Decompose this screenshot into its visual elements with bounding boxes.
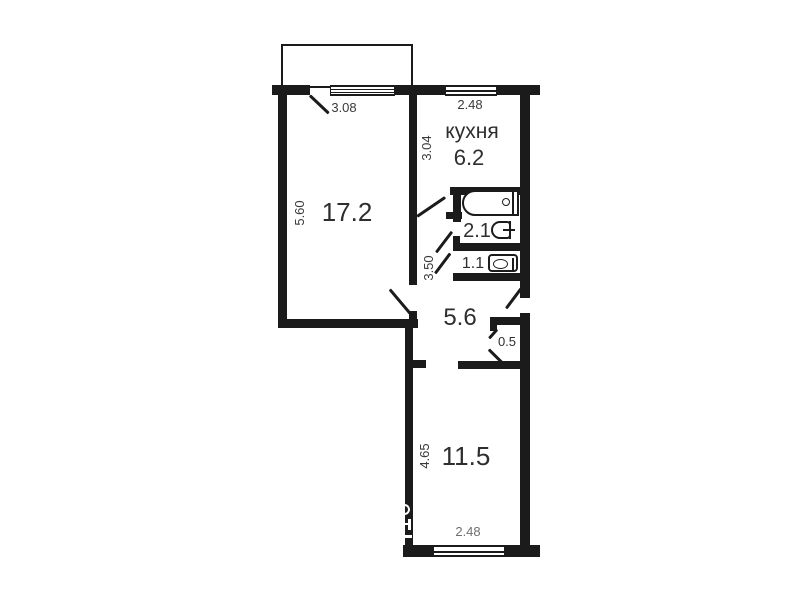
- wall: [453, 243, 528, 251]
- wall: [403, 545, 433, 557]
- dim-kitchen-depth: 3.04: [418, 118, 434, 178]
- dim-living-depth: 5.60: [291, 183, 307, 243]
- watermark-mark: [399, 504, 410, 515]
- kitchen-name-label: кухня: [422, 119, 522, 145]
- wall: [278, 85, 287, 328]
- wc-area-label: 1.1: [443, 254, 503, 273]
- window: [445, 85, 497, 96]
- wall: [409, 95, 417, 285]
- wall: [520, 313, 530, 553]
- wall: [413, 360, 426, 368]
- balcony-outline: [281, 44, 413, 88]
- dim-kitchen-width: 2.48: [440, 96, 500, 112]
- window: [330, 85, 395, 96]
- wall: [278, 319, 418, 328]
- closet-area-label: 0.5: [487, 333, 527, 349]
- dim-hall-depth: 3.50: [420, 238, 436, 298]
- wall: [453, 273, 528, 281]
- living-room-area-label: 17.2: [297, 196, 397, 228]
- dim-bedroom-depth: 4.65: [416, 426, 432, 486]
- wall: [395, 85, 445, 95]
- wall: [446, 212, 462, 219]
- watermark-mark: [401, 523, 411, 525]
- hall-area-label: 5.6: [410, 303, 510, 333]
- wall: [497, 85, 540, 95]
- door-swing: [416, 196, 446, 217]
- dim-living-width: 3.08: [314, 99, 374, 115]
- window: [433, 545, 505, 557]
- wall: [505, 545, 540, 557]
- bathroom-area-label: 2.1: [447, 219, 507, 243]
- bathtub-icon: [462, 190, 519, 216]
- floor-plan: 17.2 кухня 6.2 2.1 1.1 5.6 0.5 11.5 3.08…: [0, 0, 800, 600]
- dim-bedroom-width: 2.48: [438, 523, 498, 539]
- wall: [458, 361, 521, 369]
- kitchen-area-label: 6.2: [419, 145, 519, 171]
- watermark-mark: [400, 535, 412, 538]
